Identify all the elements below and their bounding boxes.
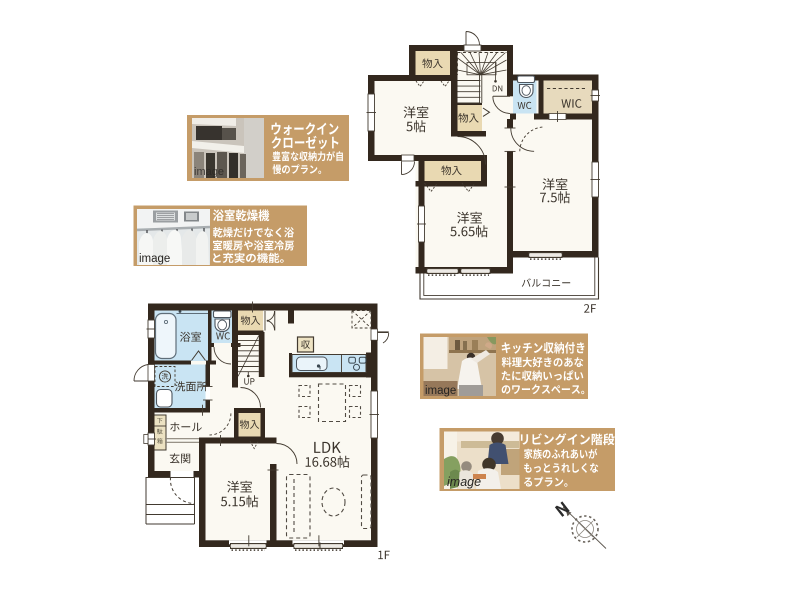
svg-text:image: image: [425, 385, 456, 397]
svg-text:image: image: [194, 166, 224, 178]
svg-text:image: image: [447, 475, 481, 489]
svg-text:image: image: [139, 253, 170, 265]
